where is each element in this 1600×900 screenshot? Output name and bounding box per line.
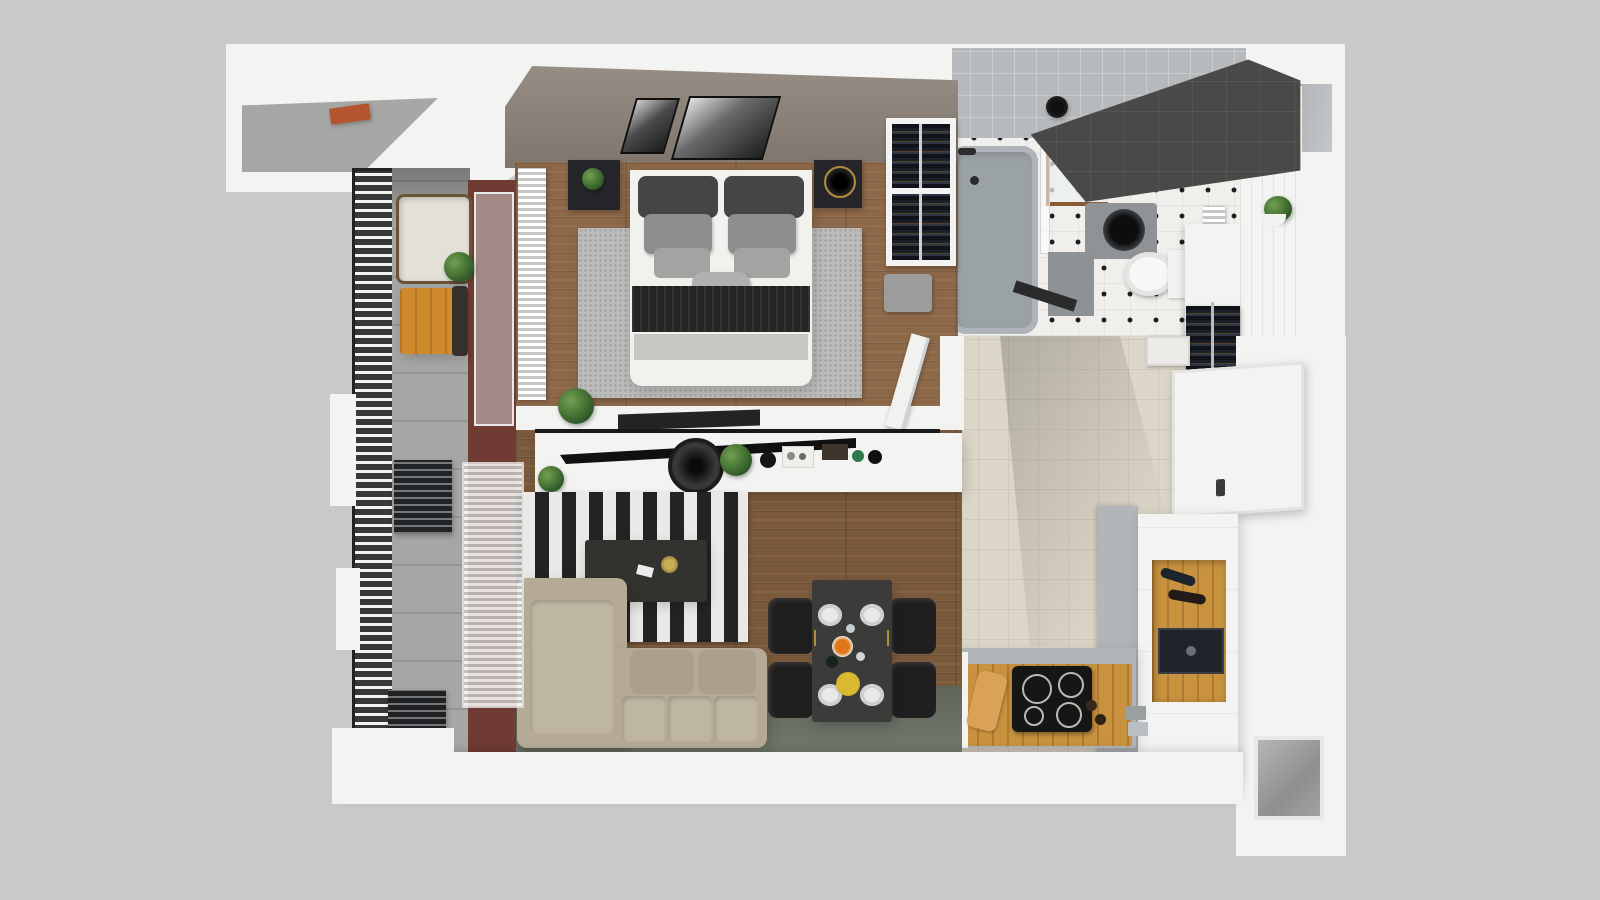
nightstand-plant [582, 168, 604, 190]
bottom-wall-band [338, 752, 1243, 804]
kitchen-towel [1126, 706, 1146, 720]
gray-blanket [634, 334, 808, 360]
decor-jar [868, 450, 882, 464]
bathtub [950, 146, 1038, 334]
tub-drain [970, 176, 979, 185]
bedroom-window-glass [474, 192, 514, 426]
cooktop-ring [1024, 706, 1044, 726]
dining-chair [768, 662, 814, 718]
bedroom-radiator [518, 168, 546, 400]
dining-chair [890, 662, 936, 718]
coat-rack [1186, 306, 1240, 370]
toilet [1124, 252, 1174, 296]
black-throw [632, 286, 810, 332]
headboard-cushion [724, 176, 804, 218]
book-stack [1146, 336, 1190, 366]
glass [856, 652, 865, 661]
cutlery [887, 630, 889, 646]
bedroom-hall-wall [940, 336, 964, 430]
headboard-cushion [638, 176, 718, 218]
wine-bottle [1159, 567, 1196, 588]
cooktop-ring [1056, 702, 1082, 728]
decor-tray [782, 446, 814, 468]
cooktop-ring [1058, 672, 1084, 698]
sofa-seat-cushion [714, 696, 758, 742]
yellow-plate [836, 672, 860, 696]
table-fan [668, 438, 724, 494]
plate [860, 684, 884, 706]
tray-item [787, 452, 795, 460]
shower-glass-screen [1040, 140, 1050, 254]
sofa-back-cushion [698, 650, 756, 694]
sofa-seat-cushion [622, 696, 666, 742]
pepper-mill [1086, 700, 1097, 711]
balcony-plant [444, 252, 474, 282]
washer-drum [1103, 209, 1145, 251]
wardrobe-clothes [892, 194, 950, 260]
built-in-oven [1158, 628, 1224, 674]
console-plant [720, 444, 752, 476]
wine-bottle [826, 656, 838, 668]
dining-table [812, 580, 892, 722]
washing-machine [1085, 203, 1157, 259]
wine-bottle [1167, 589, 1206, 605]
balcony-louver-screen [394, 460, 452, 534]
decor-bowl [760, 452, 776, 468]
pepper-mill [1095, 714, 1106, 725]
wine-oven-niche [1152, 560, 1226, 702]
entrance-door [1172, 361, 1304, 518]
decor-dark-tray [822, 444, 848, 460]
balcony-side-chair [452, 286, 468, 356]
sofa-chaise-cushion [530, 600, 614, 734]
wardrobe-rail [919, 194, 922, 260]
sofa-seat-cushion [668, 696, 712, 742]
oven-knob [1186, 646, 1196, 656]
coat-rail [1211, 302, 1214, 374]
glass [846, 624, 855, 633]
ceiling-mirror-large [671, 96, 781, 160]
shower-head [1046, 96, 1068, 118]
decor-green-ball [852, 450, 864, 462]
kitchen-towel [1128, 722, 1148, 736]
orange-dish [832, 636, 853, 657]
wardrobe-clothes [892, 124, 950, 188]
dining-chair [768, 598, 814, 654]
bedroom-plant [558, 388, 594, 424]
tray-item [799, 453, 806, 460]
table-flowers [661, 556, 678, 573]
door-handle [1216, 479, 1225, 497]
wardrobe-rail [919, 124, 922, 188]
ottoman [884, 274, 932, 312]
left-wall-tab [336, 568, 360, 650]
living-window-blinds [462, 462, 524, 708]
left-wall-tab [330, 394, 356, 506]
induction-cooktop [1012, 666, 1092, 732]
cutlery [814, 630, 816, 646]
open-wardrobe [886, 118, 956, 266]
floor-plant-small [538, 466, 564, 492]
plate [860, 604, 884, 626]
sofa-back-cushion [630, 650, 694, 694]
table-card [636, 564, 654, 578]
table-lamp [824, 166, 856, 198]
plate [818, 604, 842, 626]
cooktop-ring [1022, 674, 1052, 704]
tub-faucet [958, 148, 976, 155]
apartment-render [0, 0, 1600, 900]
dining-chair [890, 598, 936, 654]
bottom-right-niche [1254, 736, 1324, 820]
bottom-left-corner-wall [332, 728, 454, 804]
